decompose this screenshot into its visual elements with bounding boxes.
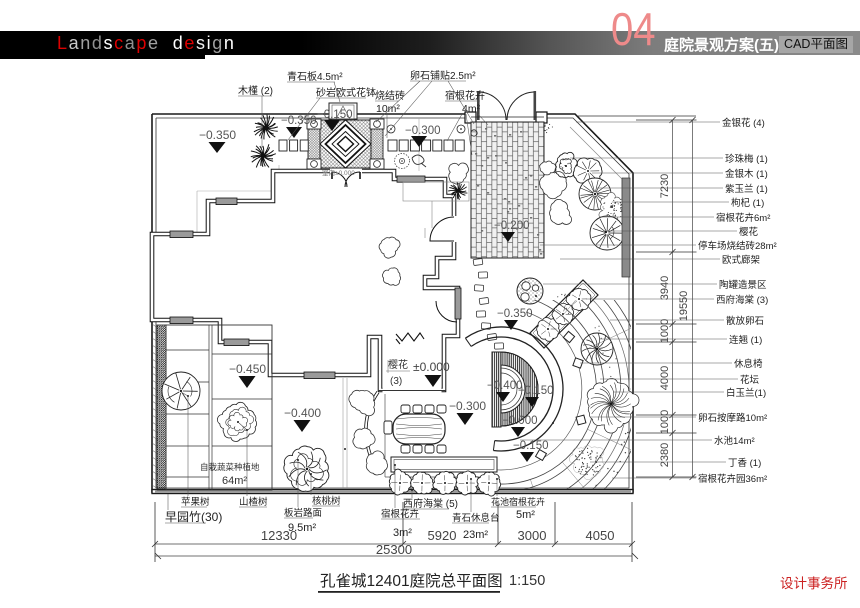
svg-text:散放卵石: 散放卵石: [726, 315, 764, 327]
svg-text:−0.400: −0.400: [284, 406, 321, 420]
svg-text:紫玉兰 (1): 紫玉兰 (1): [725, 183, 768, 195]
svg-text:−0.150: −0.150: [317, 109, 353, 121]
svg-text:青石板4.5m²: 青石板4.5m²: [287, 70, 343, 83]
svg-text:2380: 2380: [659, 443, 671, 467]
svg-text:3940: 3940: [659, 276, 671, 300]
svg-text:−0.000: −0.000: [502, 415, 538, 427]
svg-text:10m²: 10m²: [376, 103, 400, 115]
svg-text:4050: 4050: [586, 528, 615, 543]
svg-text:3m²: 3m²: [393, 527, 412, 539]
svg-text:3000: 3000: [518, 528, 547, 543]
svg-text:枸杞 (1): 枸杞 (1): [731, 197, 764, 209]
svg-text:停车场烧结砖28m²: 停车场烧结砖28m²: [698, 240, 777, 252]
svg-text:19550: 19550: [678, 291, 690, 322]
svg-text:珍珠梅 (1): 珍珠梅 (1): [725, 153, 768, 165]
svg-text:花池宿根花卉: 花池宿根花卉: [491, 496, 545, 507]
svg-text:花坛: 花坛: [740, 374, 760, 386]
svg-text:陶罐造景区: 陶罐造景区: [719, 279, 767, 291]
svg-text:25300: 25300: [376, 542, 412, 557]
svg-text:9.5m²: 9.5m²: [288, 522, 316, 534]
svg-text:白玉兰(1): 白玉兰(1): [726, 387, 766, 399]
svg-text:核桃树: 核桃树: [312, 495, 341, 507]
svg-text:−0.450: −0.450: [229, 362, 266, 376]
svg-text:金银木 (1): 金银木 (1): [725, 168, 768, 180]
svg-text:1000: 1000: [659, 319, 671, 343]
svg-text:樱花: 樱花: [388, 358, 408, 371]
svg-text:−0.350: −0.350: [497, 308, 533, 320]
svg-text:5920: 5920: [428, 528, 457, 543]
svg-text:宿根花卉6m²: 宿根花卉6m²: [716, 212, 770, 224]
svg-text:宿根花卉: 宿根花卉: [445, 89, 485, 102]
svg-text:宿根花卉园36m²: 宿根花卉园36m²: [698, 473, 767, 485]
svg-text:欧式廊架: 欧式廊架: [722, 254, 761, 266]
svg-text:64m²: 64m²: [222, 475, 247, 487]
svg-text:7230: 7230: [659, 174, 671, 198]
svg-text:西府海棠 (5): 西府海棠 (5): [403, 497, 458, 510]
svg-text:−0.150: −0.150: [518, 385, 554, 397]
svg-text:(3): (3): [390, 376, 402, 387]
svg-text:1:150: 1:150: [509, 573, 545, 589]
svg-text:水池14m²: 水池14m²: [714, 435, 755, 447]
svg-text:4000: 4000: [659, 366, 671, 390]
svg-text:丁香 (1): 丁香 (1): [728, 458, 761, 469]
svg-text:卵石按摩路10m²: 卵石按摩路10m²: [698, 412, 767, 424]
svg-text:木槿 (2): 木槿 (2): [238, 84, 273, 97]
svg-text:孔雀城12401庭院总平面图: 孔雀城12401庭院总平面图: [320, 571, 503, 590]
svg-text:休息椅: 休息椅: [734, 358, 763, 370]
svg-text:砂岩欧式花钵: 砂岩欧式花钵: [316, 86, 376, 99]
svg-text:−0.350: −0.350: [281, 115, 317, 127]
svg-text:自栽蔬菜种植地: 自栽蔬菜种植地: [200, 462, 260, 472]
svg-text:−0.150: −0.150: [513, 440, 549, 452]
svg-text:−0.300: −0.300: [405, 125, 441, 137]
svg-text:卵石铺贴2.5m²: 卵石铺贴2.5m²: [410, 69, 476, 82]
svg-text:设计事务所: 设计事务所: [780, 576, 848, 591]
svg-text:西府海棠 (3): 西府海棠 (3): [716, 294, 768, 306]
svg-text:樱花: 樱花: [739, 226, 759, 238]
svg-text:−0.300: −0.300: [449, 399, 486, 413]
svg-text:室内±0.000: 室内±0.000: [322, 168, 355, 177]
svg-text:苹果树: 苹果树: [181, 496, 210, 508]
svg-text:山楂树: 山楂树: [239, 496, 268, 508]
svg-text:青石休息台: 青石休息台: [452, 512, 500, 524]
svg-text:烧结砖: 烧结砖: [375, 89, 405, 102]
svg-text:23m²: 23m²: [463, 529, 488, 541]
svg-text:金银花 (4): 金银花 (4): [722, 117, 765, 129]
svg-text:1000: 1000: [659, 410, 671, 434]
svg-text:板岩路面: 板岩路面: [284, 507, 322, 519]
svg-text:±0.000: ±0.000: [413, 360, 450, 374]
svg-text:−0.200: −0.200: [494, 220, 530, 232]
svg-text:连翘 (1): 连翘 (1): [729, 334, 762, 346]
svg-text:5m²: 5m²: [516, 509, 535, 521]
svg-text:−0.350: −0.350: [199, 128, 236, 142]
svg-text:早园竹(30): 早园竹(30): [165, 510, 222, 524]
